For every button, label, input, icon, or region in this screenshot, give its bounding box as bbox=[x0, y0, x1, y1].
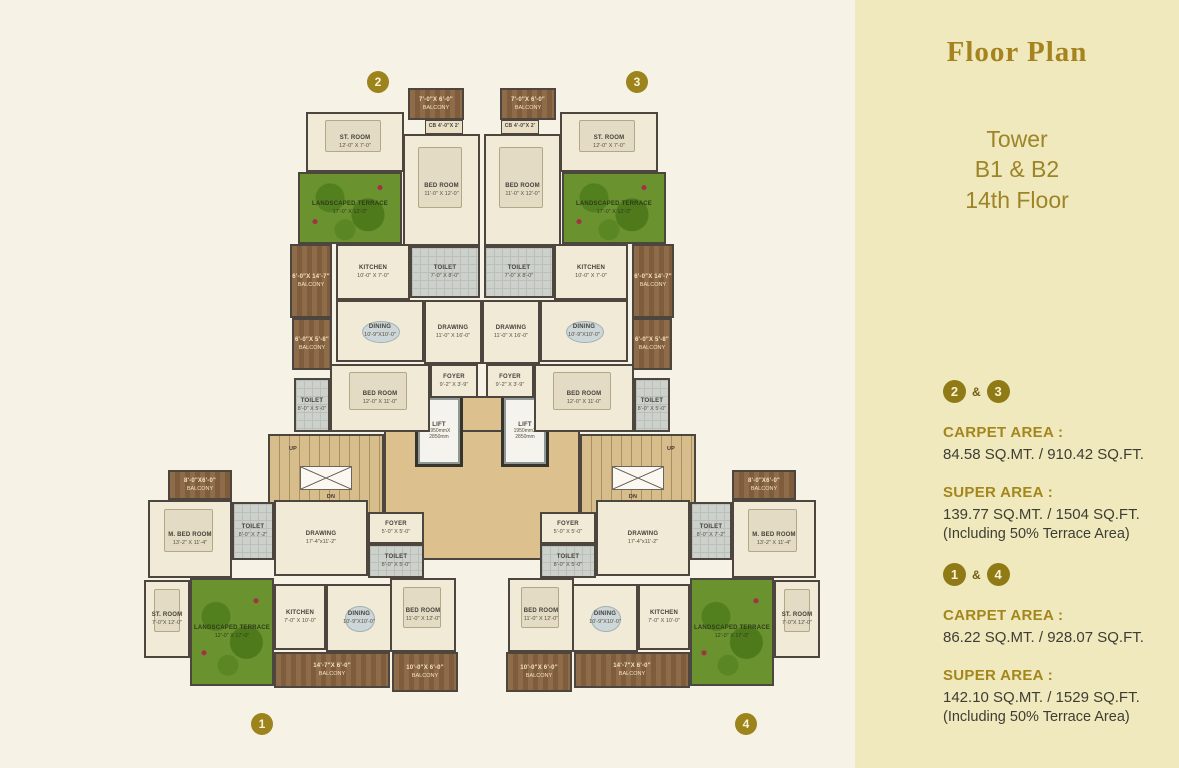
terrace-note: (Including 50% Terrace Area) bbox=[943, 709, 1163, 725]
room-toilet-1b: TOILET8'-0" X 5'-0" bbox=[368, 544, 424, 578]
super-area-label: SUPER AREA : bbox=[943, 484, 1163, 501]
room-up-left: UP bbox=[284, 444, 302, 454]
room-dining-3: DINING10'-9"X10'-0" bbox=[540, 300, 628, 362]
room-drawing-3: DRAWING11'-0" X 16'-0" bbox=[482, 300, 540, 364]
room-drawing-2: DRAWING11'-0" X 16'-0" bbox=[424, 300, 482, 364]
super-area-value: 139.77 SQ.MT. / 1504 SQ.FT. bbox=[943, 506, 1163, 523]
unit-badge-row-1-4: 1 & 4 bbox=[943, 563, 1163, 586]
unit-badge-2: 2 bbox=[943, 380, 966, 403]
room-terrace-4: LANDSCAPED TERRACE12'-0" X 17'-0" bbox=[690, 578, 774, 686]
page-title: Floor Plan bbox=[855, 36, 1179, 69]
carpet-area-value: 84.58 SQ.MT. / 910.42 SQ.FT. bbox=[943, 446, 1163, 463]
room-toilet-3b: TOILET8'-0" X 5'-0" bbox=[634, 378, 670, 432]
room-terrace-2: LANDSCAPED TERRACE17'-0" X 12'-0" bbox=[298, 172, 402, 244]
room-balcony-2-side-a: 6'-0"X 14'-7"BALCONY bbox=[290, 244, 332, 318]
terrace-note: (Including 50% Terrace Area) bbox=[943, 526, 1163, 542]
room-toilet-2b: TOILET8'-0" X 5'-0" bbox=[294, 378, 330, 432]
plan-unit-badge-4: 4 bbox=[735, 713, 757, 735]
room-mbed-4: M. BED ROOM13'-2" X 11'-4" bbox=[732, 500, 816, 578]
area-section-units-2-3: 2 & 3 CARPET AREA : 84.58 SQ.MT. / 910.4… bbox=[943, 380, 1163, 542]
subtitle-line-2: B1 & B2 bbox=[855, 154, 1179, 184]
room-foyer-3: FOYER9'-2" X 3'-9" bbox=[486, 364, 534, 398]
subtitle-line-3: 14th Floor bbox=[855, 185, 1179, 215]
room-stroom-1: ST. ROOM7'-0"X 12'-0" bbox=[144, 580, 190, 658]
room-bedroom-2b: BED ROOM12'-0" X 11'-0" bbox=[330, 364, 430, 432]
room-stroom-2: ST. ROOM12'-0" X 7'-0" bbox=[306, 112, 404, 172]
room-toilet-4a: TOILET8'-0" X 7'-2" bbox=[690, 502, 732, 560]
room-balcony-1-bottom: 14'-7"X 6'-0"BALCONY bbox=[274, 652, 390, 688]
room-drawing-4: DRAWING17'-4"x11'-2" bbox=[596, 500, 690, 576]
room-drawing-1: DRAWING17'-4"x11'-2" bbox=[274, 500, 368, 576]
plan-unit-badge-2: 2 bbox=[367, 71, 389, 93]
plan-unit-badge-3: 3 bbox=[626, 71, 648, 93]
area-section-units-1-4: 1 & 4 CARPET AREA : 86.22 SQ.MT. / 928.0… bbox=[943, 563, 1163, 725]
room-balcony-4-bottom: 14'-7"X 6'-0"BALCONY bbox=[574, 652, 690, 688]
room-duct-left bbox=[300, 466, 352, 490]
room-toilet-2: TOILET7'-0" X 8'-0" bbox=[410, 246, 480, 298]
carpet-area-label: CARPET AREA : bbox=[943, 424, 1163, 441]
room-bedroom-1: BED ROOM11'-0" X 12'-0" bbox=[390, 578, 456, 652]
room-dining-1: DINING10'-9"X10'-0" bbox=[326, 584, 392, 652]
super-area-label: SUPER AREA : bbox=[943, 667, 1163, 684]
room-cb-2: CB 4'-0"X 2' bbox=[425, 120, 463, 134]
room-bedroom-4: BED ROOM11'-0" X 12'-0" bbox=[508, 578, 574, 652]
room-toilet-1a: TOILET8'-0" X 7'-2" bbox=[232, 502, 274, 560]
room-up-right: UP bbox=[662, 444, 680, 454]
room-duct-right bbox=[612, 466, 664, 490]
room-balcony-3-side-b: 6'-0"X 5'-8"BALCONY bbox=[632, 318, 672, 370]
room-balcony-1-corner: 10'-0"X 6'-0"BALCONY bbox=[392, 652, 458, 692]
room-balcony-2-side-b: 6'-0"X 5'-8"BALCONY bbox=[292, 318, 332, 370]
room-stroom-3: ST. ROOM12'-0" X 7'-0" bbox=[560, 112, 658, 172]
carpet-area-label: CARPET AREA : bbox=[943, 607, 1163, 624]
room-terrace-1: LANDSCAPED TERRACE12'-0" X 17'-0" bbox=[190, 578, 274, 686]
room-balcony-1-top: 8'-0"X6'-0"BALCONY bbox=[168, 470, 232, 500]
room-kitchen-3: KITCHEN10'-0" X 7'-0" bbox=[554, 244, 628, 300]
unit-badge-3: 3 bbox=[987, 380, 1010, 403]
room-cb-3: CB 4'-0"X 2' bbox=[501, 120, 539, 134]
room-kitchen-1: KITCHEN7'-0" X 10'-0" bbox=[274, 584, 326, 650]
unit-badge-4: 4 bbox=[987, 563, 1010, 586]
room-balcony-4-top: 8'-0"X6'-0"BALCONY bbox=[732, 470, 796, 500]
room-foyer-4: FOYER5'-0" X 5'-0" bbox=[540, 512, 596, 544]
unit-badge-1: 1 bbox=[943, 563, 966, 586]
room-terrace-3: LANDSCAPED TERRACE17'-0" X 12'-0" bbox=[562, 172, 666, 244]
room-bedroom-3b: BED ROOM12'-0" X 11'-0" bbox=[534, 364, 634, 432]
room-foyer-2: FOYER9'-2" X 3'-9" bbox=[430, 364, 478, 398]
ampersand: & bbox=[972, 568, 981, 582]
room-toilet-3: TOILET7'-0" X 8'-0" bbox=[484, 246, 554, 298]
room-bedroom-3: BED ROOM11'-0" X 12'-0" bbox=[484, 134, 561, 246]
tower-subtitle: Tower B1 & B2 14th Floor bbox=[855, 124, 1179, 215]
room-balcony-3-top: 7'-0"X 6'-0"BALCONY bbox=[500, 88, 556, 120]
room-bedroom-2: BED ROOM11'-0" X 12'-0" bbox=[403, 134, 480, 246]
room-stroom-4: ST. ROOM7'-0"X 12'-0" bbox=[774, 580, 820, 658]
subtitle-line-1: Tower bbox=[855, 124, 1179, 154]
room-kitchen-4: KITCHEN7'-0" X 10'-0" bbox=[638, 584, 690, 650]
room-dining-4: DINING10'-9"X10'-0" bbox=[572, 584, 638, 652]
room-balcony-3-side-a: 6'-0"X 14'-7"BALCONY bbox=[632, 244, 674, 318]
room-foyer-1: FOYER5'-0" X 5'-0" bbox=[368, 512, 424, 544]
carpet-area-value: 86.22 SQ.MT. / 928.07 SQ.FT. bbox=[943, 629, 1163, 646]
room-balcony-2-top: 7'-0"X 6'-0"BALCONY bbox=[408, 88, 464, 120]
info-sidebar: Floor Plan Tower B1 & B2 14th Floor 2 & … bbox=[855, 0, 1179, 768]
room-balcony-4-corner: 10'-0"X 6'-0"BALCONY bbox=[506, 652, 572, 692]
super-area-value: 142.10 SQ.MT. / 1529 SQ.FT. bbox=[943, 689, 1163, 706]
room-kitchen-2: KITCHEN10'-0" X 7'-0" bbox=[336, 244, 410, 300]
room-lobby-strip bbox=[460, 396, 504, 432]
room-toilet-4b: TOILET8'-0" X 5'-0" bbox=[540, 544, 596, 578]
room-dining-2: DINING10'-9"X10'-0" bbox=[336, 300, 424, 362]
room-mbed-1: M. BED ROOM13'-2" X 11'-4" bbox=[148, 500, 232, 578]
unit-badge-row-2-3: 2 & 3 bbox=[943, 380, 1163, 403]
ampersand: & bbox=[972, 385, 981, 399]
plan-unit-badge-1: 1 bbox=[251, 713, 273, 735]
